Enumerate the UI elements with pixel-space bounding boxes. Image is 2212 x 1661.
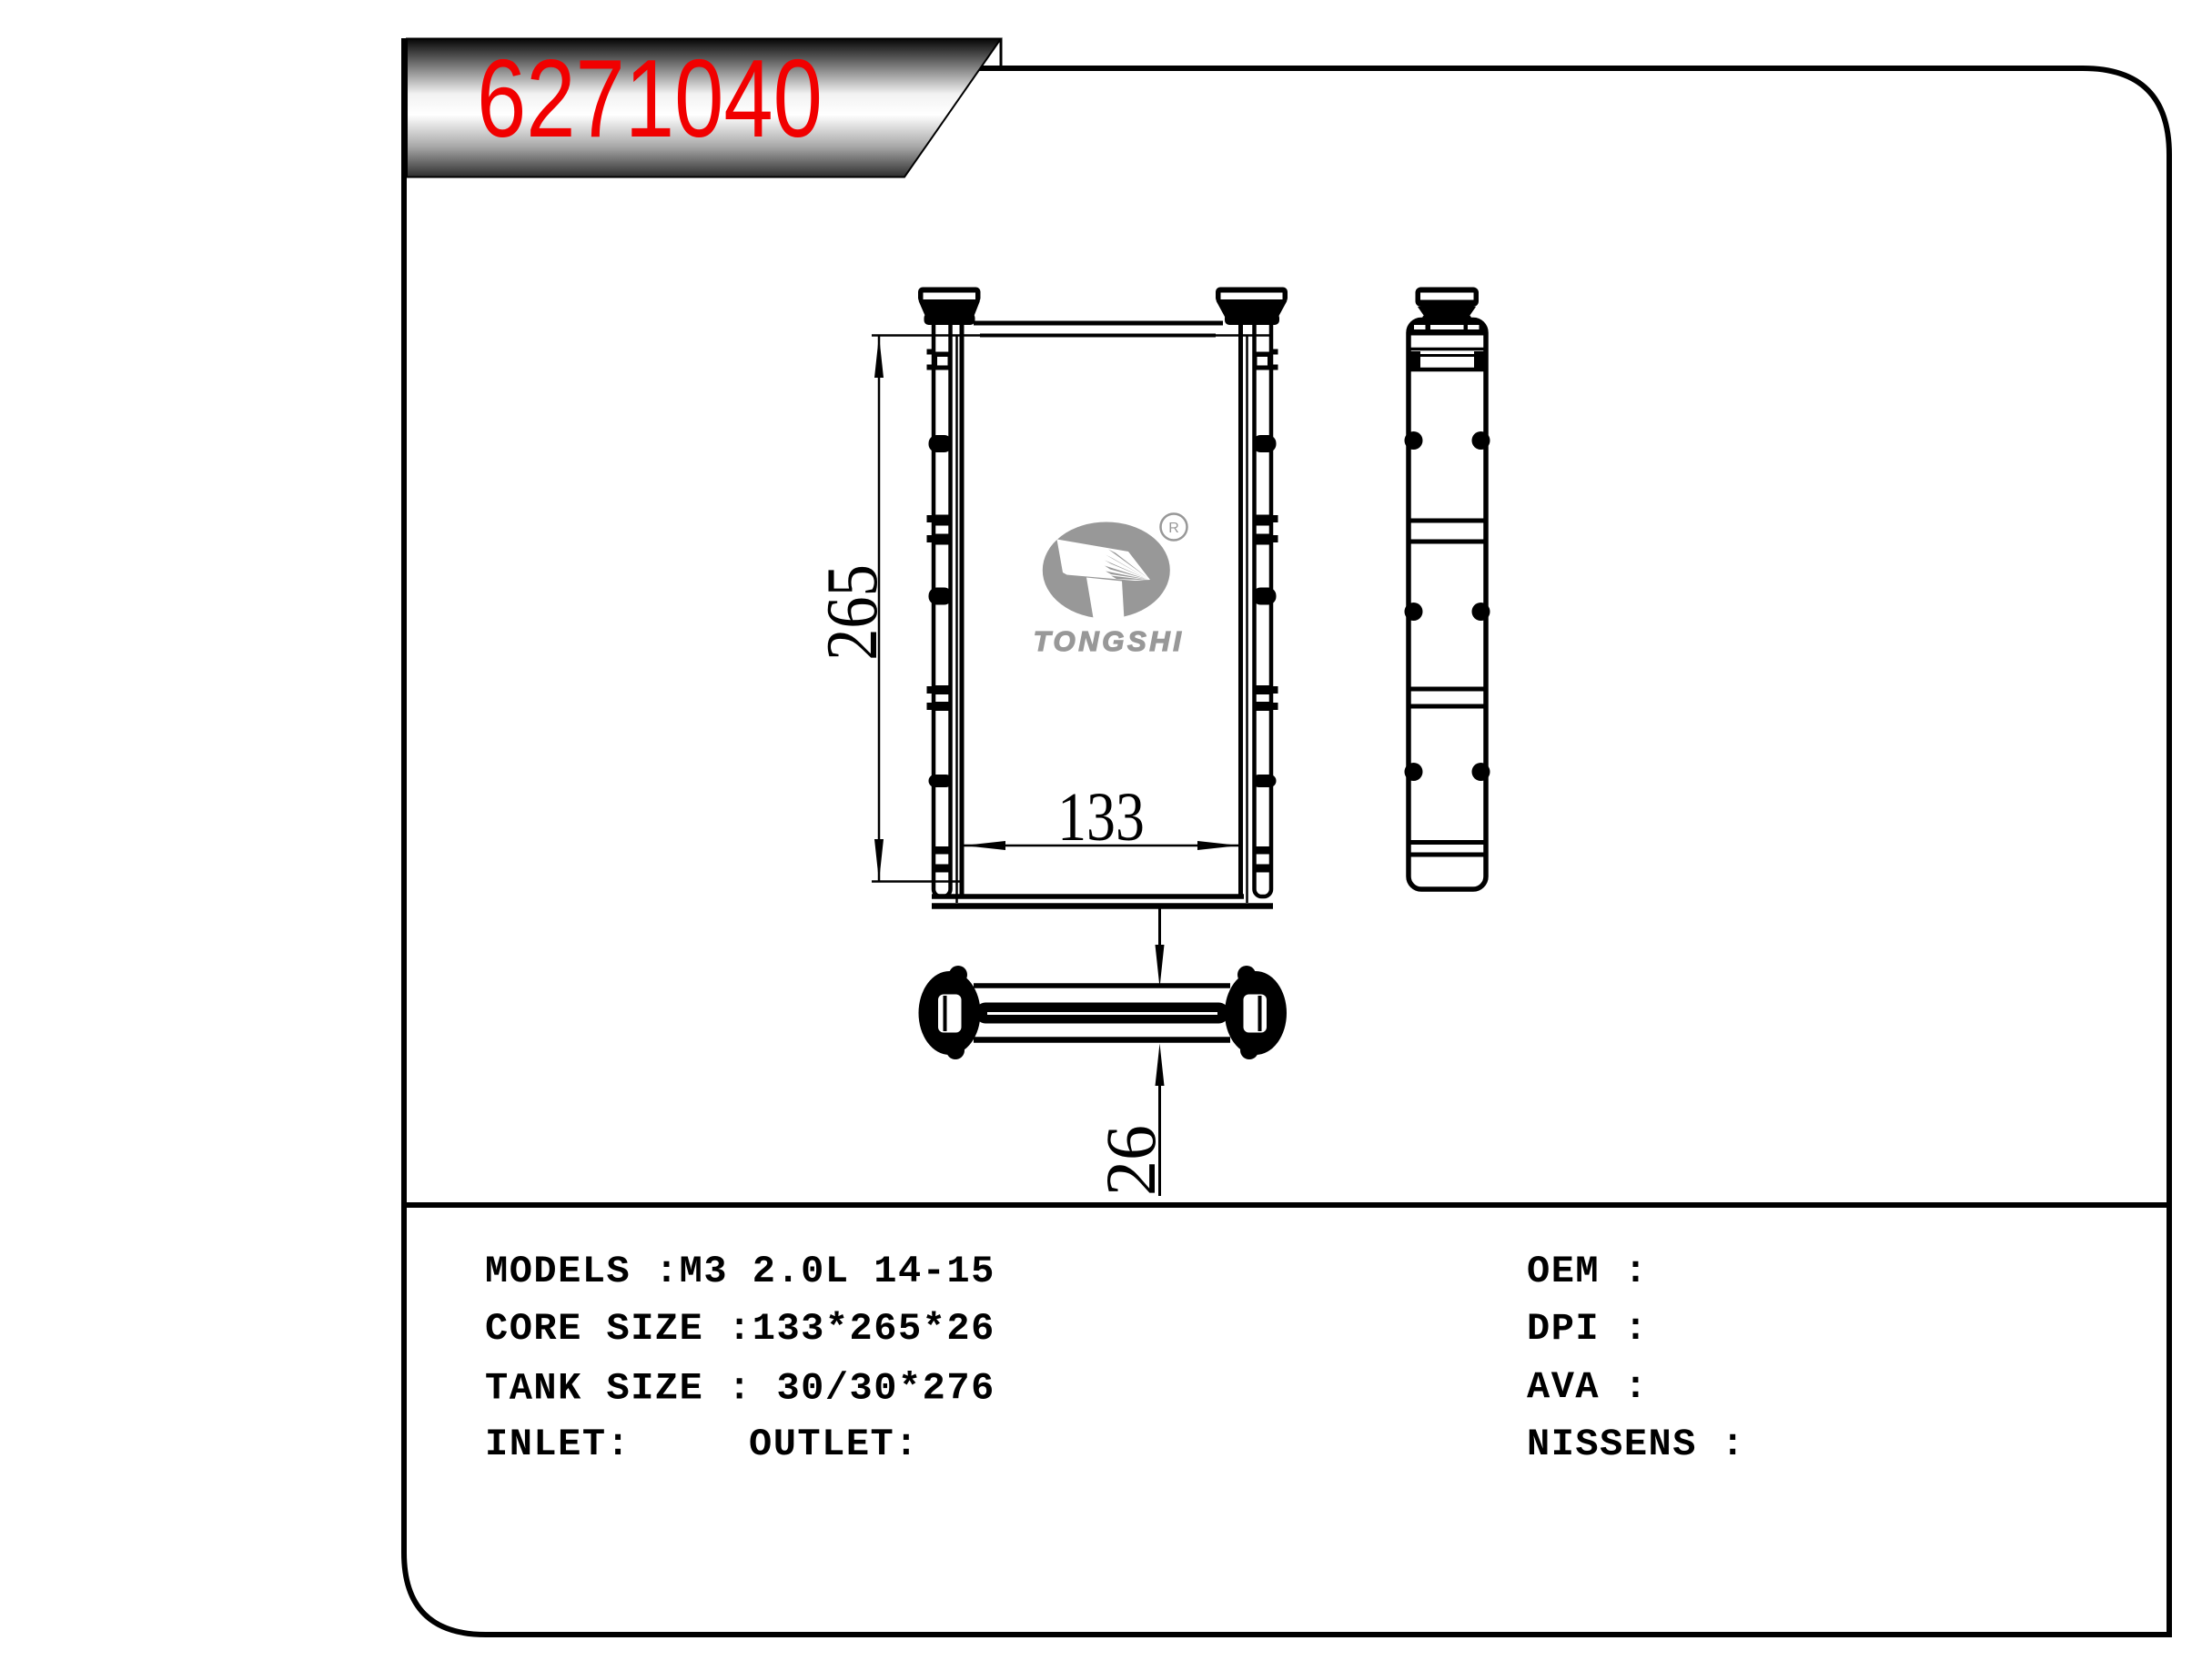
svg-text:OEM :: OEM : bbox=[1527, 1250, 1649, 1293]
svg-text:MODELS :M3 2.0L 14-15: MODELS :M3 2.0L 14-15 bbox=[485, 1250, 995, 1293]
svg-text:DPI :: DPI : bbox=[1527, 1307, 1649, 1351]
svg-text:OUTLET:: OUTLET: bbox=[749, 1423, 919, 1466]
svg-text:NISSENS :: NISSENS : bbox=[1527, 1423, 1745, 1466]
svg-text:TANK SIZE : 30/30*276: TANK SIZE : 30/30*276 bbox=[485, 1367, 995, 1411]
svg-text:26: 26 bbox=[1091, 1125, 1170, 1196]
svg-text:AVA :: AVA : bbox=[1527, 1365, 1649, 1409]
svg-text:INLET:: INLET: bbox=[485, 1423, 631, 1466]
svg-text:R: R bbox=[1168, 521, 1179, 536]
svg-text:133: 133 bbox=[1057, 779, 1145, 856]
svg-text:CORE SIZE :133*265*26: CORE SIZE :133*265*26 bbox=[485, 1307, 995, 1351]
svg-text:6271040: 6271040 bbox=[477, 37, 823, 161]
svg-text:TONGSHI: TONGSHI bbox=[1034, 625, 1185, 657]
svg-text:265: 265 bbox=[813, 564, 893, 661]
